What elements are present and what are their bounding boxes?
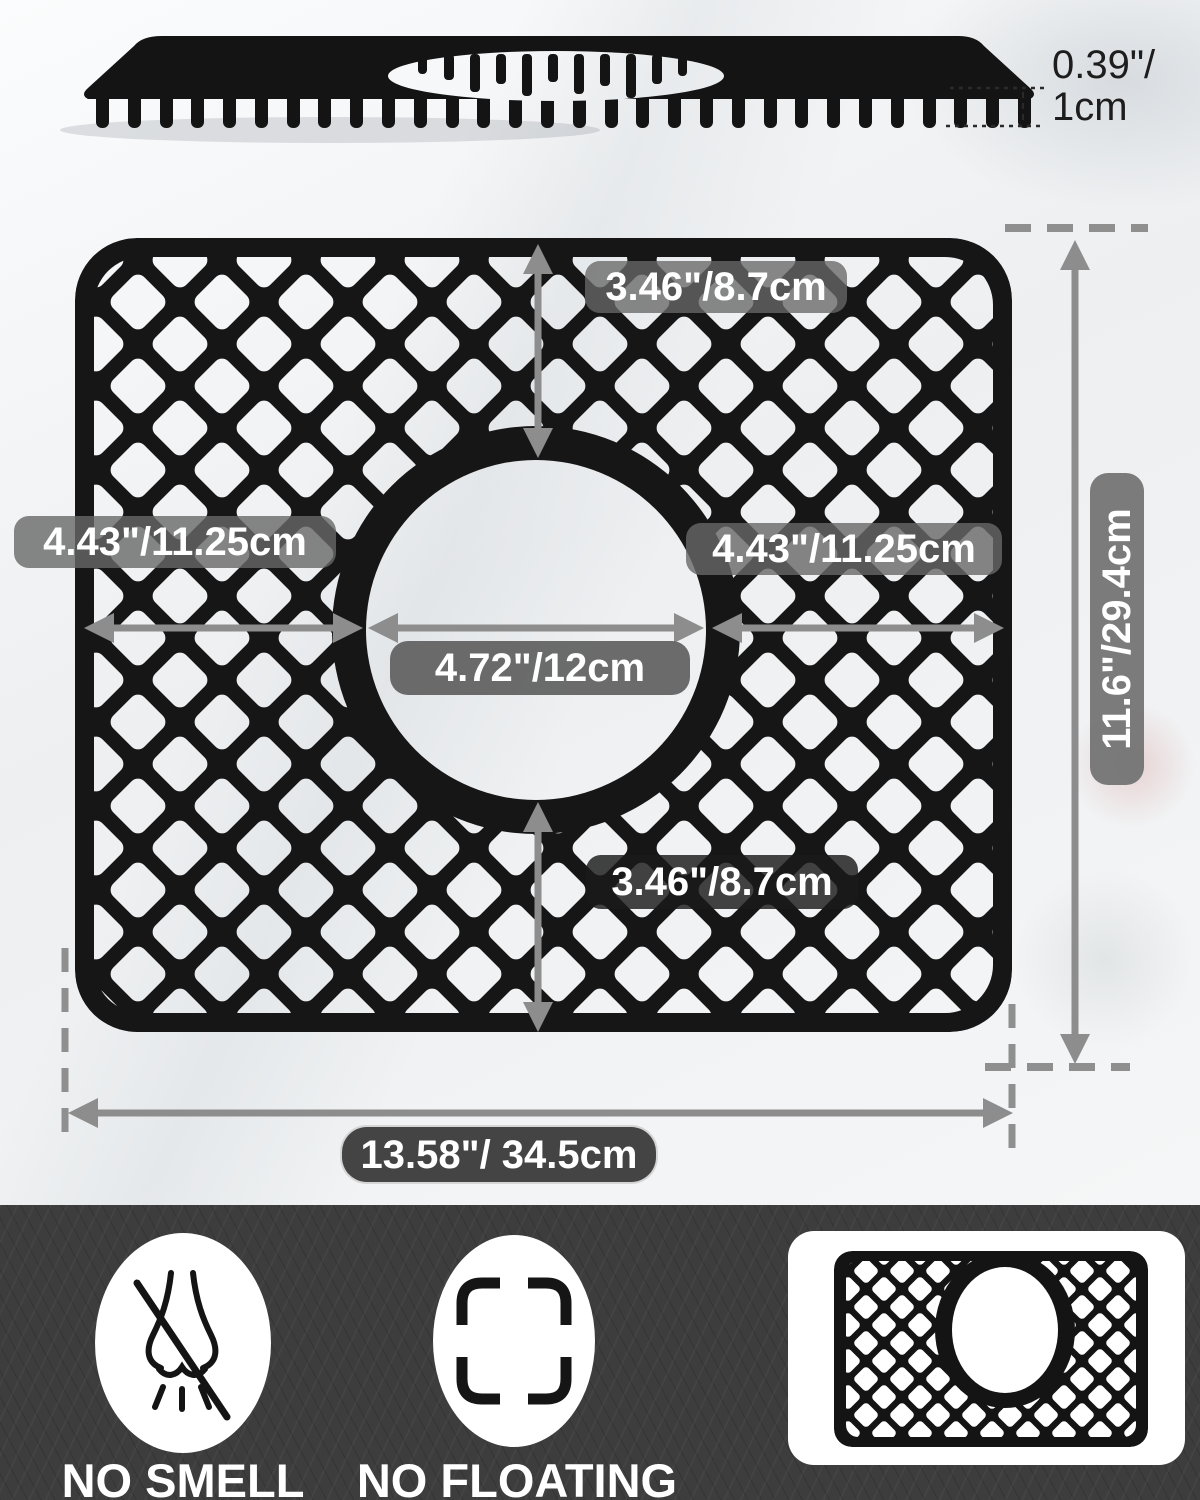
- no-floating-icon: [430, 1233, 598, 1449]
- thickness-inches: 0.39"/: [1052, 44, 1155, 86]
- label-thickness: 0.39"/ 1cm: [1052, 44, 1155, 128]
- label-bottom-gap: 3.46"/8.7cm: [586, 855, 858, 909]
- label-overall-height: 11.6"/29.4cm: [1090, 473, 1144, 785]
- label-right-width: 4.43"/11.25cm: [686, 523, 1002, 575]
- label-left-width: 4.43"/11.25cm: [14, 516, 336, 568]
- feature-label-no-smell: NO SMELL: [33, 1457, 333, 1500]
- sink-mat-thumbnail-card: [788, 1231, 1185, 1465]
- label-hole-diameter: 4.72"/12cm: [390, 641, 690, 695]
- thickness-cm: 1cm: [1052, 86, 1155, 128]
- sink-mat-thumbnail: [788, 1231, 1185, 1465]
- product-infographic: 3.46"/8.7cm 4.43"/11.25cm 4.43"/11.25cm …: [0, 0, 1200, 1500]
- label-top-gap: 3.46"/8.7cm: [585, 261, 847, 313]
- mat-side-view: [70, 25, 1050, 140]
- feature-label-no-floating: NO FLOATING: [347, 1457, 687, 1500]
- label-overall-width: 13.58"/ 34.5cm: [340, 1125, 658, 1184]
- mat-top-view: [75, 238, 1012, 1032]
- dimension-overall-width: [68, 1098, 1013, 1128]
- diagram-artwork: [0, 0, 1200, 1205]
- dimension-overall-height: [1060, 240, 1090, 1064]
- no-smell-icon: [93, 1231, 273, 1455]
